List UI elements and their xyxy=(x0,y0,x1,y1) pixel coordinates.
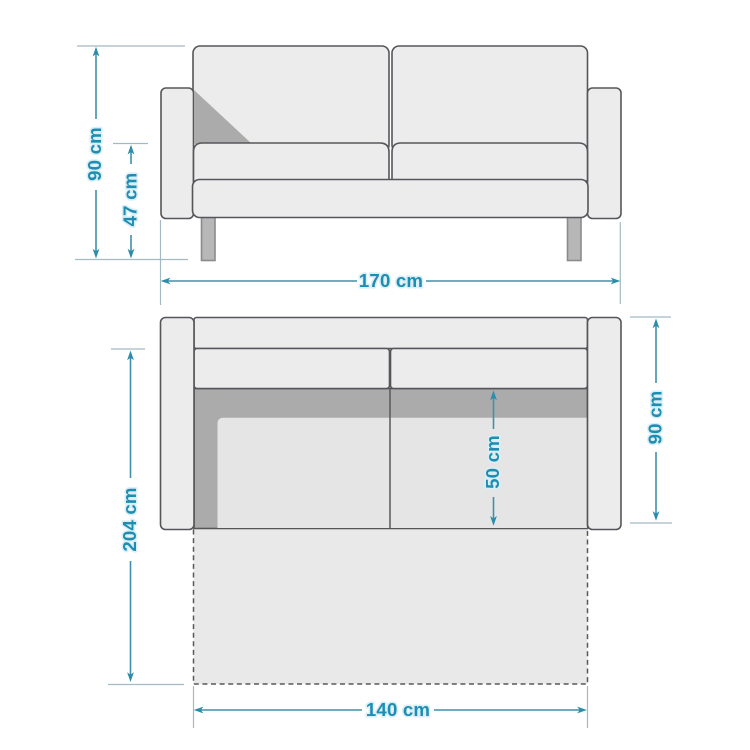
svg-text:140 cm: 140 cm xyxy=(366,699,430,720)
svg-text:47 cm: 47 cm xyxy=(120,173,141,227)
svg-text:90 cm: 90 cm xyxy=(84,127,105,181)
svg-text:90 cm: 90 cm xyxy=(645,391,666,445)
svg-text:50 cm: 50 cm xyxy=(482,435,503,489)
svg-text:204 cm: 204 cm xyxy=(119,487,140,551)
svg-text:170 cm: 170 cm xyxy=(359,270,423,291)
